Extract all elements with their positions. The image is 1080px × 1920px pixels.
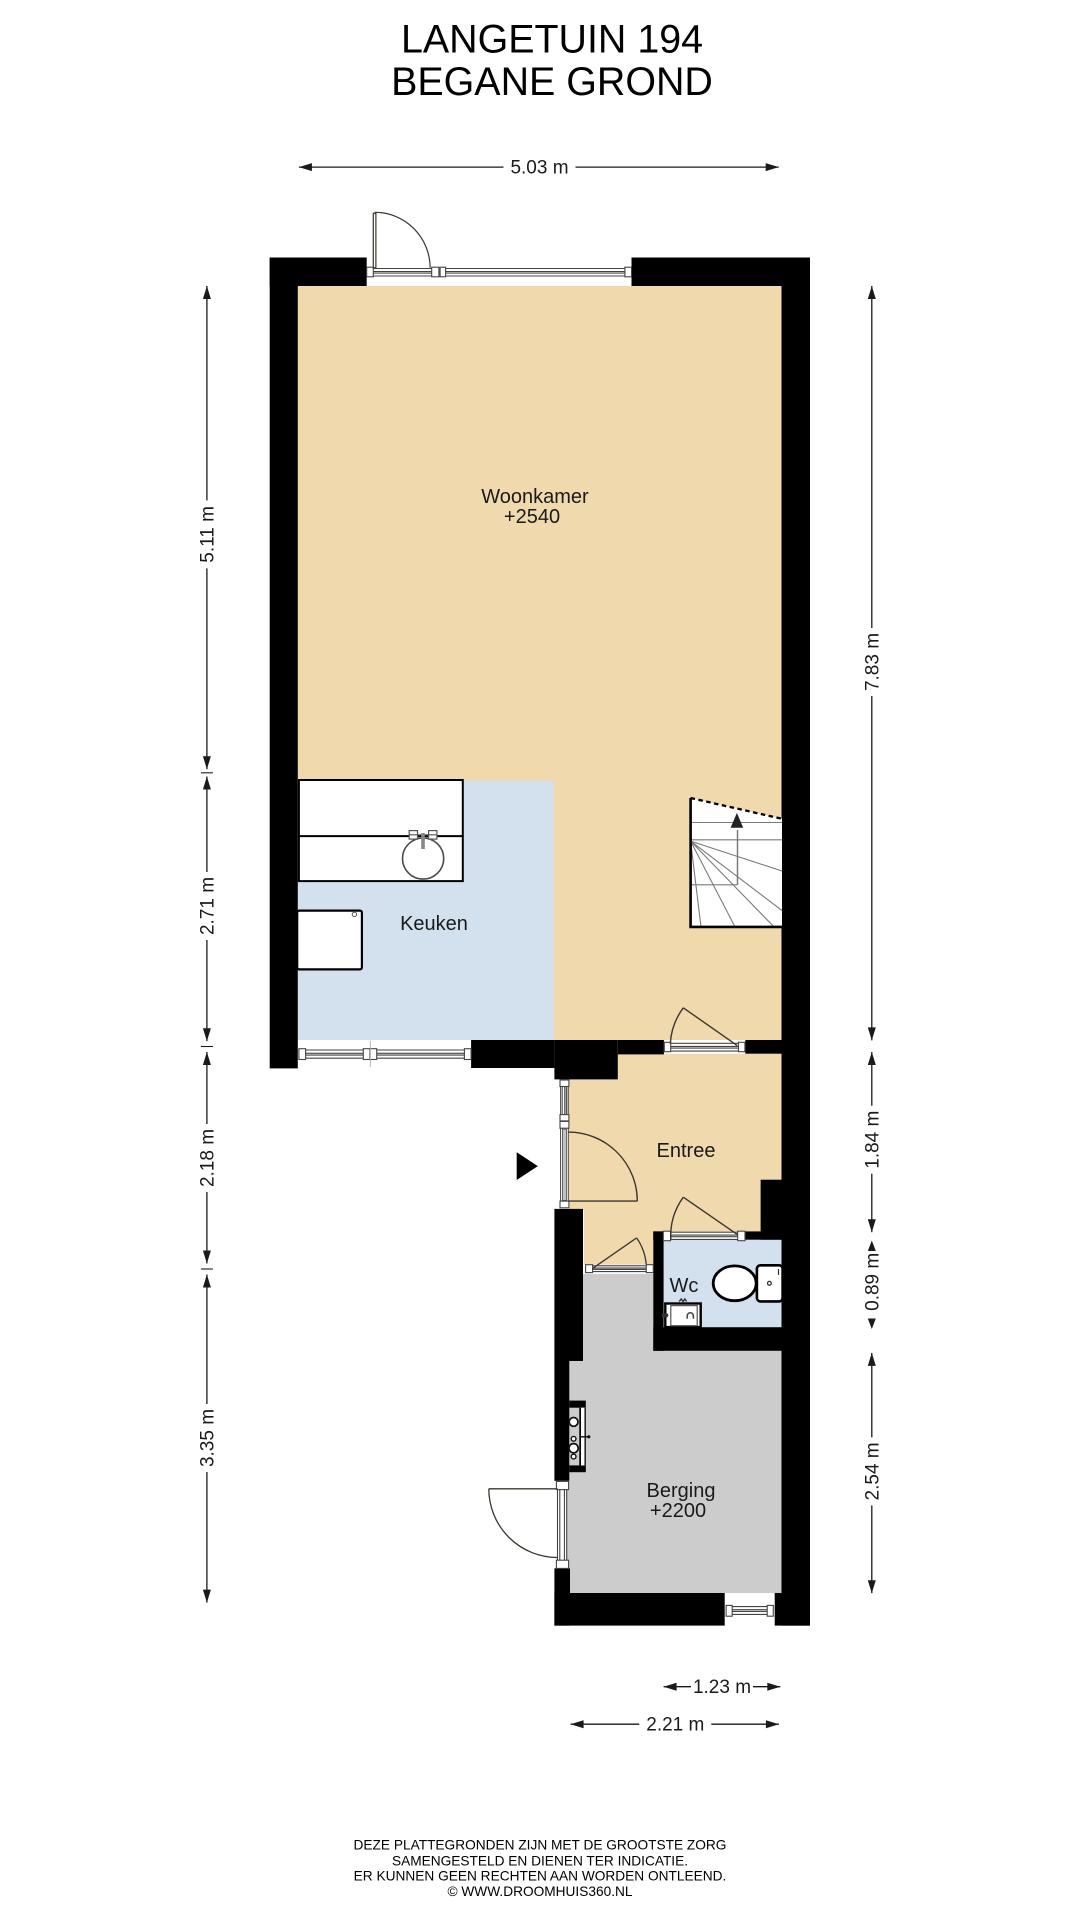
svg-text:2.54 m: 2.54 m	[862, 1442, 883, 1500]
svg-text:1.23 m: 1.23 m	[693, 1677, 751, 1698]
svg-text:Entree: Entree	[657, 1140, 716, 1162]
svg-text:1.84 m: 1.84 m	[862, 1111, 883, 1169]
svg-text:DEZE PLATTEGRONDEN ZIJN MET DE: DEZE PLATTEGRONDEN ZIJN MET DE GROOTSTE …	[354, 1837, 727, 1852]
svg-text:Woonkamer: Woonkamer	[481, 486, 589, 508]
svg-text:0.89 m: 0.89 m	[862, 1253, 883, 1311]
svg-text:LANGETUIN 194: LANGETUIN 194	[401, 18, 703, 62]
svg-text:2.18 m: 2.18 m	[197, 1129, 218, 1187]
svg-text:Wc: Wc	[670, 1275, 699, 1297]
svg-text:2.71 m: 2.71 m	[197, 877, 218, 935]
svg-text:+2540: +2540	[504, 506, 560, 528]
svg-text:7.83 m: 7.83 m	[862, 633, 883, 691]
svg-text:ER KUNNEN GEEN RECHTEN AAN WOR: ER KUNNEN GEEN RECHTEN AAN WORDEN ONTLEE…	[354, 1869, 727, 1884]
svg-text:SAMENGESTELD EN DIENEN TER IND: SAMENGESTELD EN DIENEN TER INDICATIE.	[392, 1854, 688, 1869]
svg-text:Berging: Berging	[647, 1480, 716, 1502]
svg-text:2.21 m: 2.21 m	[646, 1715, 704, 1736]
svg-text:BEGANE GROND: BEGANE GROND	[391, 60, 713, 104]
svg-text:5.11 m: 5.11 m	[197, 506, 218, 563]
svg-text:© WWW.DROOMHUIS360.NL: © WWW.DROOMHUIS360.NL	[448, 1884, 633, 1899]
svg-text:3.35 m: 3.35 m	[197, 1409, 218, 1467]
svg-text:Keuken: Keuken	[400, 913, 468, 935]
svg-text:5.03 m: 5.03 m	[510, 158, 568, 179]
svg-text:+2200: +2200	[650, 1500, 706, 1522]
